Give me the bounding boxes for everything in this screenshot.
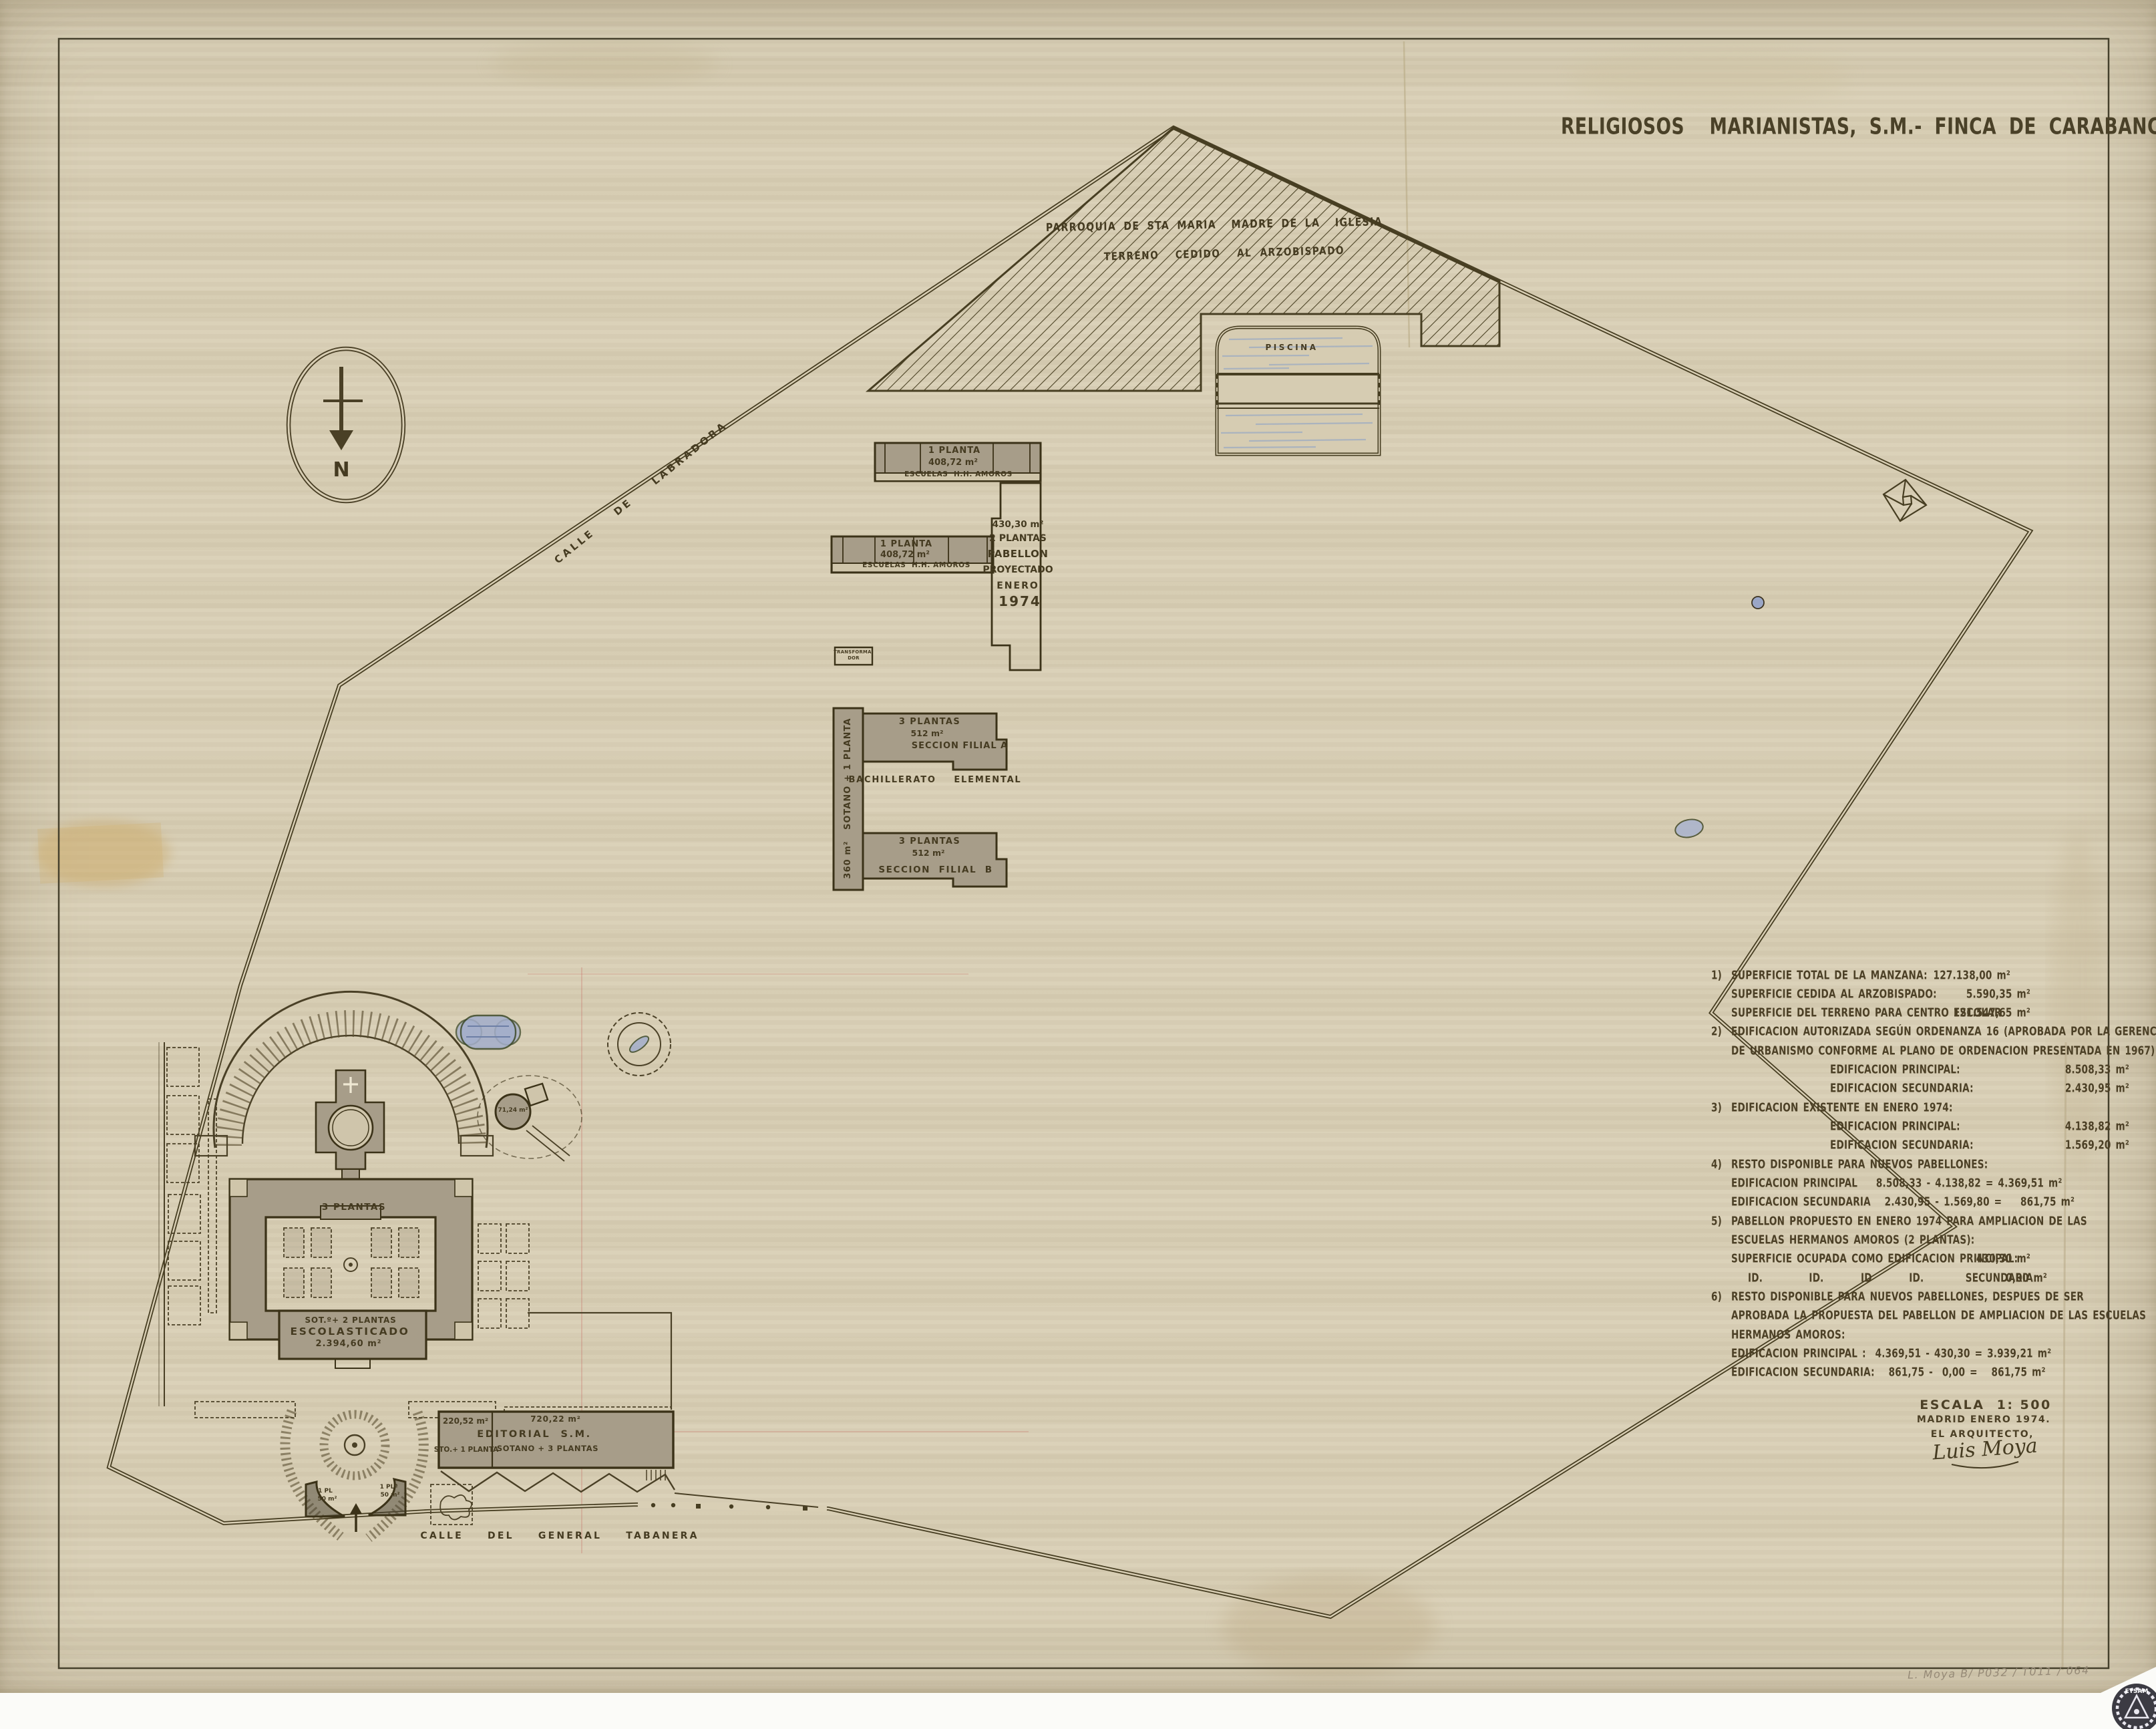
filial-b-plantas: 3 PLANTAS: [899, 837, 960, 846]
legend-line: EDIFICACION SECUNDARIA: 861,75 - 0,00 = …: [1711, 1366, 2030, 1380]
editorial-left-area: 220,52 m²: [443, 1417, 488, 1426]
quatrefoil-pond: [456, 1015, 520, 1049]
editorial-right-floors: SOTANO + 3 PLANTAS: [497, 1444, 598, 1452]
drawing-title: RELIGIOSOS MARIANISTAS, S.M.- FINCA DE C…: [1561, 114, 2156, 140]
pabellon-l4: PROYECTADO: [982, 565, 1053, 575]
legend-line: SUPERFICIE CEDIDA AL ARZOBISPADO:5.590,3…: [1711, 987, 2030, 1001]
legend-line: SUPERFICIE DEL TERRENO PARA CENTRO ESCOL…: [1711, 1006, 2030, 1020]
compass-n-label: N: [333, 460, 349, 481]
escuelas-b-plantas: 1 PLANTA: [880, 540, 932, 549]
escolasticado-area: 2.394,60 m²: [316, 1340, 382, 1349]
legend-line: EDIFICACION SECUNDARIA 2.430,95 - 1.569,…: [1711, 1195, 2030, 1209]
legend-line: 4)RESTO DISPONIBLE PARA NUEVOS PABELLONE…: [1711, 1158, 2010, 1172]
small-blue-dot: [1752, 597, 1764, 609]
chapel-dome: [329, 1106, 373, 1150]
editorial-building: [431, 1313, 818, 1525]
legend-line: DE URBANISMO CONFORME AL PLANO DE ORDENA…: [1711, 1044, 2030, 1058]
legend-line: 2)EDIFICACION AUTORIZADA SEGÚN ORDENANZA…: [1711, 1025, 2010, 1039]
place-date-label: MADRID ENERO 1974.: [1917, 1414, 2050, 1425]
piscina-label: PISCINA: [1265, 343, 1318, 352]
escuelas-a-area: 408,72 m²: [928, 458, 978, 468]
legend-line: EDIFICACION PRINCIPAL:8.508,33 m²: [1711, 1063, 2129, 1077]
legend-line: 5)PABELLON PROPUESTO EN ENERO 1974 PARA …: [1711, 1215, 2010, 1229]
pabellon-plantas: 2 PLANTAS: [989, 534, 1047, 544]
filial-b-name: SECCION FILIAL B: [878, 865, 993, 875]
transformador-label-2: DOR: [848, 656, 860, 661]
stamp-text: ETSAM: [2125, 1688, 2149, 1695]
escuelas-b-name: ESCUELAS H.H. AMOROS: [862, 562, 970, 569]
gate-left-l1: 1 PL: [318, 1488, 333, 1495]
editorial-right-area: 720,22 m²: [530, 1415, 580, 1424]
escolasticado-name: ESCOLASTICADO: [291, 1326, 410, 1337]
small-pond: [1674, 817, 1704, 840]
filial-a-area: 512 m²: [911, 729, 944, 738]
courtyard-parterres: [284, 1228, 419, 1297]
legend-line: SUPERFICIE OCUPADA COMO EDIFICACION PRIN…: [1711, 1252, 2030, 1266]
legend-line: 1)SUPERFICIE TOTAL DE LA MANZANA:127.138…: [1711, 969, 2010, 983]
circular-garden-pond: [608, 1013, 671, 1076]
transformador-label-1: TRANSFORMA-: [834, 650, 874, 655]
gate-right-l1: 1 PLª: [380, 1484, 398, 1490]
filial-a-name: SECCION FILIAL A: [912, 742, 1008, 751]
legend-line: HERMANOS AMOROS:: [1711, 1328, 2030, 1342]
legend-line: APROBADA LA PROPUESTA DEL PABELLON DE AM…: [1711, 1309, 2030, 1323]
escuelas-a-plantas: 1 PLANTA: [928, 446, 980, 456]
filial-middle-label: BACHILLERATO ELEMENTAL: [848, 776, 1021, 785]
legend-line: 3)EDIFICACION EXISTENTE EN ENERO 1974:: [1711, 1101, 2010, 1115]
escuelas-a-name: ESCUELAS H.H. AMOROS: [904, 471, 1013, 478]
legend-line: ID. ID. ID ID. SECUNDARIA:0,00 m²: [1711, 1271, 2047, 1285]
terrace-zigzag: [441, 1471, 675, 1492]
pabellon-proyectado-outline: [992, 483, 1041, 670]
gate-right-l2: 50 m²: [381, 1492, 400, 1499]
round-tower: [496, 1084, 570, 1161]
pabellon-area: 430,30 m²: [993, 520, 1044, 529]
editorial-left-floors: STO.+ 1 PLANTA: [434, 1446, 499, 1454]
street-tabanera-label: CALLE DEL GENERAL TABANERA: [420, 1531, 699, 1541]
filial-b-area: 512 m²: [912, 848, 945, 857]
escolasticado-floors: SOT.º+ 2 PLANTAS: [305, 1316, 396, 1325]
garden-blob: [440, 1495, 472, 1520]
filial-a-plantas: 3 PLANTAS: [899, 718, 960, 727]
scale-label: ESCALA 1: 500: [1920, 1398, 2051, 1412]
site-plan-linework: ETSAM: [0, 0, 2156, 1729]
survey-diamond-marker: [1883, 480, 1926, 521]
pabellon-l5: ENERO: [997, 581, 1039, 591]
legend-line: EDIFICACION SECUNDARIA:2.430,95 m²: [1711, 1082, 2129, 1096]
legend-line: EDIFICACION PRINCIPAL 8.508,33 - 4.138,8…: [1711, 1176, 2030, 1191]
legend-line: EDIFICACION PRINCIPAL:4.138,82 m²: [1711, 1120, 2129, 1134]
tower-area-label: 71,24 m²: [498, 1108, 528, 1114]
legend-line: EDIFICACION SECUNDARIA:1.569,20 m²: [1711, 1138, 2129, 1152]
legend-line: 6)RESTO DISPONIBLE PARA NUEVOS PABELLONE…: [1711, 1290, 2010, 1304]
editorial-name: EDITORIAL S.M.: [477, 1430, 592, 1440]
stairs-ticks: [647, 1470, 665, 1480]
filial-wing-label: 360 m² SOTANO + 1 PLANTA: [844, 718, 853, 879]
legend-line: ESCUELAS HERMANOS AMOROS (2 PLANTAS):: [1711, 1233, 2030, 1247]
legend-line: EDIFICACION PRINCIPAL : 4.369,51 - 430,3…: [1711, 1347, 2030, 1361]
scanned-site-plan: ETSAM RELIGIOSOS MARIANISTAS, S.M.- FINC…: [0, 0, 2156, 1729]
pabellon-l6: 1974: [999, 595, 1041, 609]
escuelas-b-area: 408,72 m²: [880, 551, 930, 560]
pabellon-l3: PABELLON: [988, 549, 1049, 560]
gate-left-l2: 50 m²: [318, 1497, 337, 1503]
escolasticado-plantas: 3 PLANTAS: [322, 1203, 386, 1212]
